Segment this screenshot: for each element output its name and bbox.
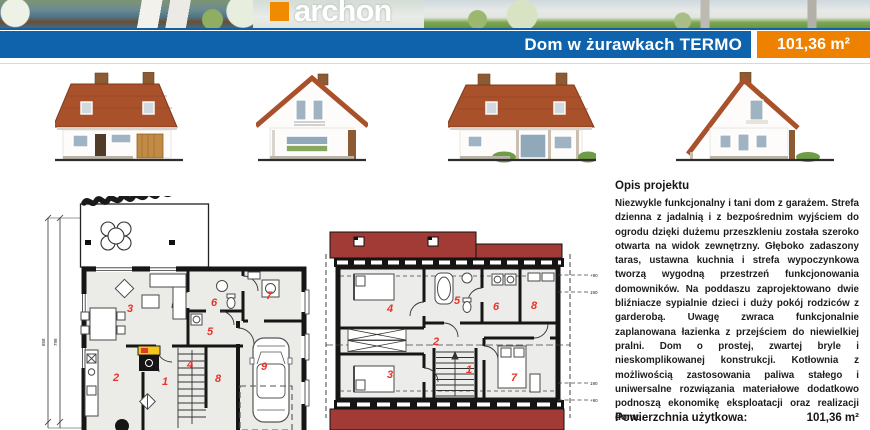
terrace bbox=[81, 196, 209, 267]
room-number-5: 5 bbox=[207, 326, 214, 338]
dimension-lines bbox=[45, 215, 84, 428]
usable-area-label: Powierzchnia użytkowa: bbox=[615, 412, 747, 424]
room-number-1: 1 bbox=[466, 364, 472, 376]
room-number-6: 6 bbox=[493, 301, 500, 313]
description-body: Niezwykle funkcjonalny i tani dom z gara… bbox=[615, 197, 859, 426]
project-description: Opis projektu Niezwykle funkcjonalny i t… bbox=[615, 180, 859, 430]
elevation-side-left bbox=[256, 72, 368, 164]
room-number-5: 5 bbox=[454, 295, 461, 307]
brand-logo: archon bbox=[253, 0, 424, 28]
height-marks: +90 190 190 +90 bbox=[590, 273, 598, 403]
strip-border bbox=[0, 28, 870, 30]
room-number-8: 8 bbox=[215, 373, 222, 385]
sofa bbox=[150, 274, 186, 287]
area-badge: 101,36 m² bbox=[757, 31, 870, 58]
room-number-7: 7 bbox=[511, 372, 518, 384]
plants bbox=[84, 196, 196, 203]
toilet bbox=[463, 302, 471, 313]
room-number-4: 4 bbox=[386, 303, 393, 315]
room-number-1: 1 bbox=[162, 376, 168, 388]
entrance-door bbox=[95, 134, 106, 158]
coffee-table bbox=[142, 295, 159, 308]
room-number-6: 6 bbox=[211, 297, 218, 309]
window bbox=[73, 135, 88, 147]
divider-line bbox=[0, 63, 870, 64]
garden-pool-photo bbox=[0, 0, 253, 28]
brochure-page: archon Dom w żurawkach TERMO 101,36 m² bbox=[0, 0, 870, 430]
room-number-8: 8 bbox=[531, 300, 538, 312]
corner-trim bbox=[789, 130, 795, 160]
stove bbox=[138, 346, 160, 371]
room-number-4: 4 bbox=[186, 359, 193, 371]
ground-floor-plan: 858 798 bbox=[38, 196, 318, 430]
height-mark: +90 bbox=[590, 398, 598, 403]
project-title: Dom w żurawkach TERMO bbox=[524, 35, 742, 55]
brand-name: archon bbox=[294, 0, 391, 29]
dimension-label: 798 bbox=[53, 338, 58, 346]
toilet bbox=[227, 298, 235, 309]
description-heading: Opis projektu bbox=[615, 180, 859, 192]
elevation-back bbox=[448, 72, 596, 164]
garage-door bbox=[137, 134, 163, 158]
height-mark: 190 bbox=[590, 290, 598, 295]
room-number-2: 2 bbox=[112, 372, 119, 384]
usable-area-row: Powierzchnia użytkowa: 101,36 m² bbox=[615, 412, 859, 424]
archon-logo-icon bbox=[270, 2, 289, 21]
room-number-3: 3 bbox=[387, 369, 393, 381]
house-exterior-photo bbox=[424, 0, 870, 28]
room-number-9: 9 bbox=[261, 361, 268, 373]
room-number-2: 2 bbox=[432, 336, 439, 348]
height-mark: +90 bbox=[590, 273, 598, 278]
usable-area-value: 101,36 m² bbox=[807, 412, 859, 424]
panorama-window bbox=[286, 136, 328, 145]
elevation-side-right bbox=[676, 72, 836, 164]
dimension-label: 858 bbox=[41, 338, 46, 346]
photo-strip: archon bbox=[0, 0, 870, 28]
closets bbox=[348, 329, 406, 352]
washbasin bbox=[462, 273, 472, 283]
terrace-glazing bbox=[520, 134, 546, 158]
height-mark: 190 bbox=[590, 381, 598, 386]
room-number-7: 7 bbox=[266, 290, 273, 302]
washbasin bbox=[217, 281, 228, 292]
room-number-3: 3 bbox=[127, 303, 133, 315]
car-icon bbox=[250, 338, 292, 422]
title-bar: Dom w żurawkach TERMO bbox=[0, 31, 751, 58]
dresser bbox=[530, 374, 540, 392]
elevation-front bbox=[55, 72, 183, 164]
attic-floor-plan: +90 190 190 +90 bbox=[324, 228, 600, 430]
dining-table bbox=[90, 308, 116, 340]
